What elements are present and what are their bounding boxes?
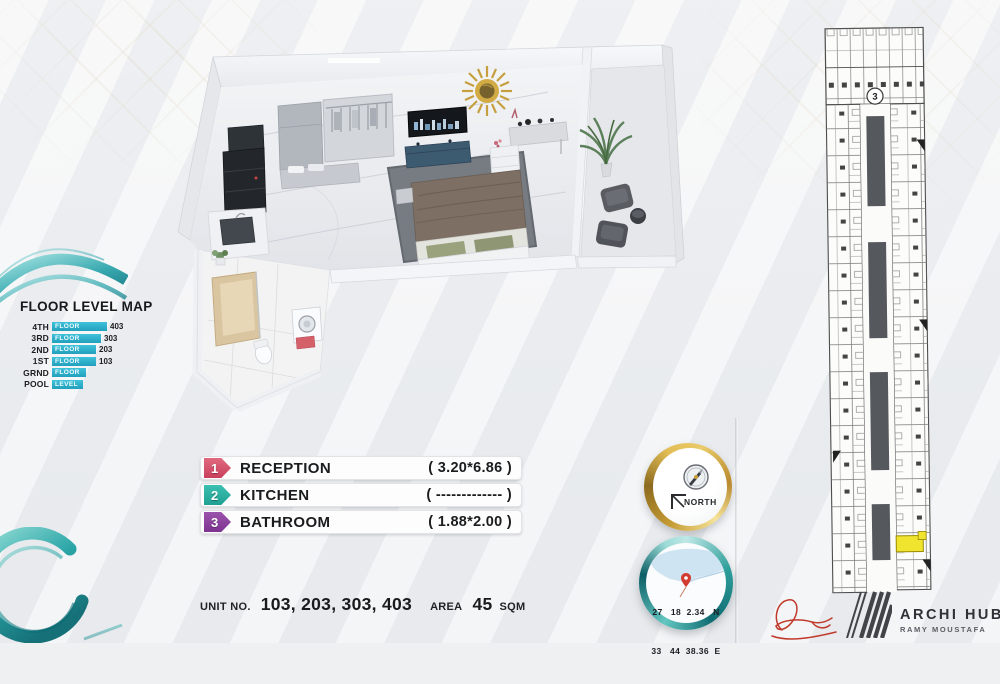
unit-no-label: UNIT NO. [200,601,251,613]
legend-badge-1: 1 [204,458,231,478]
north-compass-widget: NORTH [644,443,732,531]
background-crease-line [735,418,738,643]
floor-label: GRND [16,368,49,378]
legend-label: BATHROOM [240,514,330,531]
legend-dimensions: ( 3.20*6.86 ) [428,460,512,476]
floor-number: 303 [104,334,117,343]
legend-row-kitchen: 2 KITCHEN ( ------------- ) [200,483,522,507]
floor-bar: LEVEL [52,380,83,389]
sunburst-mirror [462,66,512,116]
floor-number: 403 [110,322,123,331]
brand-name: ARCHI HUB [900,607,1000,623]
legend-label: RECEPTION [240,460,331,477]
latitude: 27 18 2.34 N [639,606,733,619]
balcony-floor [581,65,676,257]
unit-numbers: 103, 203, 303, 403 [261,594,412,615]
floor-number: 103 [99,357,112,366]
building-site-plan: 3 [815,20,955,600]
area-value: 45 [472,594,492,615]
floor-label: POOL [16,379,49,389]
teal-ring-decoration [0,527,150,643]
coordinates: 27 18 2.34 N 33 44 38.36 E [639,580,733,684]
archi-hub-logo-icon [842,588,892,638]
building-number: 3 [872,92,877,103]
floor-map-title: FLOOR LEVEL MAP [20,299,156,314]
area-unit: SQM [500,601,526,613]
floor-label: 3RD [16,333,49,343]
floor-label: 4TH [16,322,49,332]
longitude: 33 44 38.36 E [639,645,733,658]
legend-dimensions: ( 1.88*2.00 ) [428,514,512,530]
north-label: NORTH [684,497,717,507]
floor-map-row: 2ND FLOOR 203 [16,345,156,354]
floor-bar: FLOOR [52,357,96,366]
legend-row-bathroom: 3 BATHROOM ( 1.88*2.00 ) [200,510,522,534]
floor-map-row: 4TH FLOOR 403 [16,322,156,331]
legend-row-reception: 1 RECEPTION ( 3.20*6.86 ) [200,456,522,480]
unit-info: UNIT NO. 103, 203, 303, 403 AREA 45 SQM [200,594,525,615]
area-label: AREA [430,601,462,613]
floor-map-row: 1ST FLOOR 103 [16,357,156,366]
floor-label: 1ST [16,356,49,366]
floor-bar: FLOOR [52,345,96,354]
floor-bar: FLOOR [52,368,86,377]
compass-icon [644,443,732,531]
location-map-widget: 27 18 2.34 N 33 44 38.36 E [639,536,733,630]
legend-dimensions: ( ------------- ) [426,487,512,503]
brand-subtitle: RAMY MOUSTAFA [900,625,1000,634]
floor-map-row: 3RD FLOOR 303 [16,334,156,343]
archi-hub-branding: ARCHI HUB RAMY MOUSTAFA [842,588,1000,638]
room-legend: 1 RECEPTION ( 3.20*6.86 ) 2 KITCHEN ( --… [200,456,522,537]
floor-number: 203 [99,345,112,354]
floor-level-map: FLOOR LEVEL MAP 4TH FLOOR 403 3RD FLOOR … [16,299,156,392]
floor-bar: FLOOR [52,334,101,343]
legend-badge-3: 3 [204,512,231,532]
floor-label: 2ND [16,345,49,355]
floorplan-3d-render [168,20,713,430]
floor-bar: FLOOR [52,322,107,331]
legend-label: KITCHEN [240,487,309,504]
floor-map-row: GRND FLOOR [16,368,156,377]
legend-badge-2: 2 [204,485,231,505]
signature-scribble [768,592,840,642]
floor-map-row: POOL LEVEL [16,380,156,389]
